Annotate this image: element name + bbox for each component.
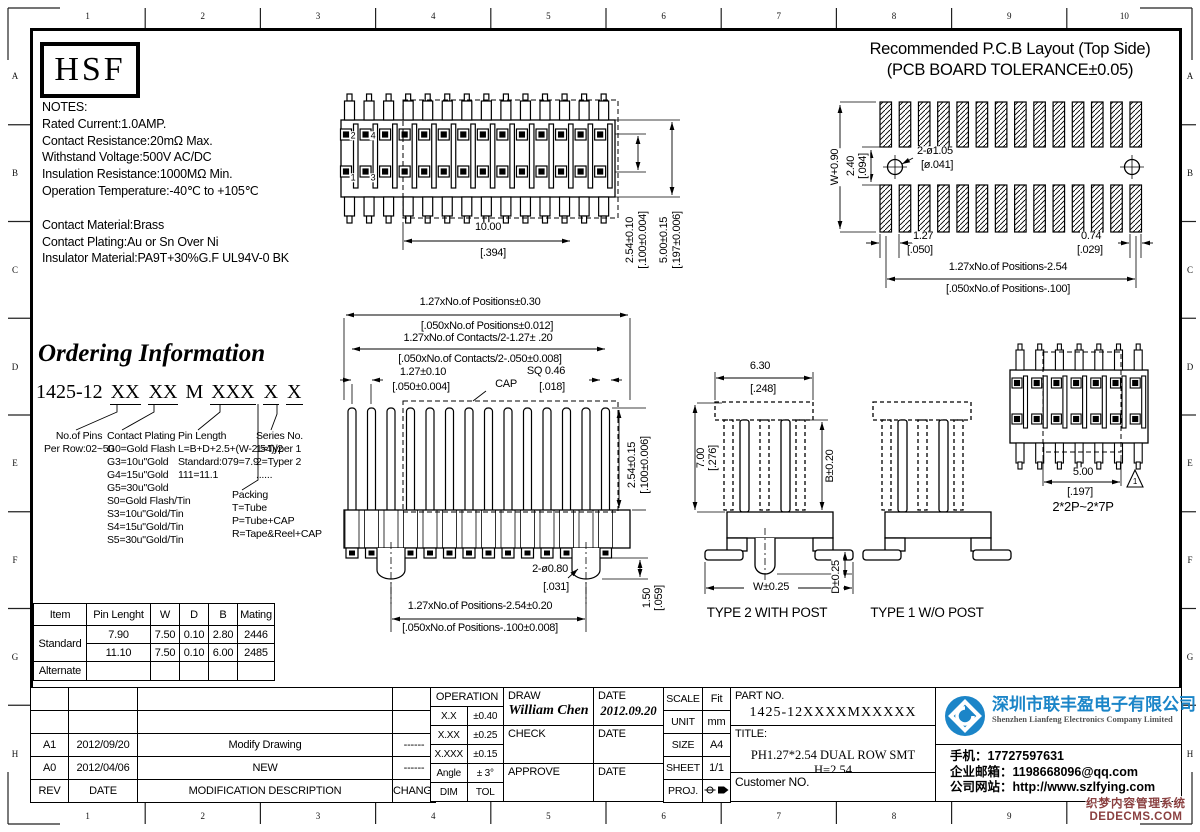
dim-label: TYPE 2 WITH POST [706,606,828,620]
tolerance-dim: X.XX [431,726,468,745]
dim-label: [.029] [1076,245,1104,257]
approve-label: APPROVE [508,766,560,778]
zone-letter: F [1187,555,1192,565]
hsf-logo-text: HSF [54,51,125,89]
zone-number: 1 [85,11,90,21]
spec-cell: 2485 [238,644,275,662]
zone-letter: H [12,749,19,759]
zone-letter: G [1187,652,1194,662]
dim-label: 4 [370,131,377,140]
tolerance-dim: X.X [431,707,468,726]
dim-label: 2.54±0.15 [627,441,639,489]
hsf-logo: HSF [40,42,140,98]
revision-cell: A0 [31,757,69,780]
revision-cell [31,711,69,734]
spec-cell: 7.90 [87,626,151,644]
dim-label: [.050xNo.of Positions-.100±0.008] [401,623,559,635]
note-line: Operation Temperature:-40℃ to +105℃ [42,183,289,200]
revision-table: A12012/09/20Modify Drawing------A02012/0… [30,687,436,803]
spec-cell: 7.50 [151,626,180,644]
zone-number: 9 [1007,11,1012,21]
zone-letter: B [12,168,18,178]
zone-letter: E [1187,458,1193,468]
title-cell: TITLE: PH1.27*2.54 DUAL ROW SMT H=2.54 [730,725,936,773]
ordering-col-pins: No.of PinsPer Row:02~50 [44,430,114,456]
ordering-col-item: Per Row:02~50 [44,443,114,456]
ordering-col-item: S3=10u"Gold/Tin [107,508,190,521]
ordering-col-header: Series No. [256,430,303,443]
draw-date-cell: DATE 2012.09.20 [593,687,664,726]
date-label: DATE [598,766,626,778]
check-cell: CHECK [503,725,594,764]
dim-label: B±0.20 [825,449,837,484]
revision-cell: A1 [31,734,69,757]
tolerance-value: ±0.15 [467,745,504,764]
company-logo-cell: 深圳市联丰盈电子有限公司 Shenzhen Lianfeng Electroni… [935,687,1182,745]
spec-table: ItemPin LenghtWDBMatingStandard7.907.500… [33,603,275,681]
spec-cell: 11.10 [87,644,151,662]
ordering-col-packing: PackingT=TubeP=Tube+CAPR=Tape&Reel+CAP [232,489,322,541]
zone-number: 7 [777,811,782,821]
dim-label: 2*2P~2*7P [1051,500,1114,514]
dim-label: 5.00 [1072,467,1094,479]
zone-number: 2 [201,811,206,821]
draw-date: 2012.09.20 [594,704,663,719]
small-view-details [1012,344,1146,469]
dim-label: [.248] [749,384,777,396]
zone-number: 7 [777,11,782,21]
meta-value: 1/1 [703,757,731,780]
meta-label: SIZE [664,734,703,757]
note-line: Contact Plating:Au or Sn Over Ni [42,234,289,251]
note-line: Contact Material:Brass [42,217,289,234]
part-segment: 1425-12 [36,381,103,405]
dim-label: 1.27xNo.of Positions-2.54 [948,262,1068,274]
revision-footer: MODIFICATION DESCRIPTION [138,780,393,803]
zone-letter: F [12,555,17,565]
meta-value: mm [703,711,731,734]
tolerance-table: OPERATIONX.X±0.40X.XX±0.25X.XXX±0.15Angl… [430,687,504,802]
dim-label: 1.27xNo.of Positions-2.54±0.20 [407,601,553,613]
part-no-value: 1425-12XXXXMXXXXX [731,705,935,721]
tolerance-value: ±0.40 [467,707,504,726]
watermark: 织梦内容管理系统 DEDECMS.COM [1076,795,1196,823]
drawing-sheet: HSF NOTES:Rated Current:1.0AMP.Contact R… [0,0,1200,832]
note-line: Insulation Resistance:1000MΩ Min. [42,166,289,183]
dim-label: 10.00 [474,222,502,234]
dim-label: 2-ø0.80 [531,564,569,576]
dim-label: [.018] [538,382,566,394]
revision-footer: REV [31,780,69,803]
ordering-col-item: T=Tube [232,502,322,515]
watermark-line2: DEDECMS.COM [1076,811,1196,823]
spec-header: Pin Lenght [87,604,151,626]
ordering-col-header: No.of Pins [44,430,114,443]
note-line: NOTES: [42,99,289,116]
date-label: DATE [598,690,626,702]
dim-label: W+0.90 [830,148,842,186]
ordering-col-item: 2=Typer 2 [256,456,303,469]
type2-side-view [705,402,853,585]
zone-number: 1 [85,811,90,821]
notes-block: NOTES:Rated Current:1.0AMP.Contact Resis… [42,99,289,267]
company-contact-line: 公司网站：http://www.szlfying.com [950,780,1181,796]
spec-cell: 0.10 [180,626,209,644]
third-angle-projection-icon [704,784,730,796]
front-view-body [344,510,630,548]
approve-cell: APPROVE [503,763,594,802]
drawer-signature: William Chen [504,703,593,719]
zone-number: 6 [661,11,666,21]
date-label: DATE [598,728,626,740]
zone-letter: C [12,265,18,275]
dim-label: [.050] [906,245,934,257]
dim-label: 2.40 [846,155,858,177]
zone-letter: H [1187,749,1194,759]
customer-label: Customer NO. [735,775,809,789]
ordering-col-item: 1=Typer 1 [256,443,303,456]
part-segment: M [185,381,203,405]
draw-cell: DRAW William Chen [503,687,594,726]
revision-footer: DATE [69,780,138,803]
spec-cell: 0.10 [180,644,209,662]
dim-label: 1.27±0.10 [399,367,447,379]
dim-label: W±0.25 [752,582,790,594]
revision-cell [69,688,138,711]
ordering-title: Ordering Information [38,340,265,368]
spec-header: W [151,604,180,626]
company-contact-line: 手机：17727597631 [950,749,1181,765]
spec-header: Mating [238,604,275,626]
company-name-en: Shenzhen Lianfeng Electronics Company Li… [992,714,1196,724]
zone-letter: D [1187,362,1194,372]
revision-cell: NEW [138,757,393,780]
zone-number: 3 [316,811,321,821]
zone-number: 9 [1007,811,1012,821]
spec-cell: 2.80 [209,626,238,644]
zone-number: 6 [661,811,666,821]
dim-label: [.094] [858,152,870,180]
tolerance-value: ± 3° [467,764,504,783]
dim-label: 1.27xNo.of Positions±0.30 [419,297,542,309]
revision-cell: Modify Drawing [138,734,393,757]
spec-cell: 2446 [238,626,275,644]
meta-value: A4 [703,734,731,757]
type1-side-view [863,402,1011,560]
check-date-cell: DATE [593,725,664,764]
dim-label: [.050xNo.of Positions±0.012] [420,321,554,333]
dim-label: 0.74 [1080,231,1102,243]
proj-symbol-cell [703,780,731,803]
spec-cell: 7.50 [151,644,180,662]
approve-date-cell: DATE [593,763,664,802]
company-contact-cell: 手机：17727597631企业邮箱：1198668096@qq.com公司网站… [935,744,1182,802]
zone-letter: B [1187,168,1193,178]
title-label: TITLE: [735,728,767,740]
company-contact-line: 企业邮箱：1198668096@qq.com [950,765,1181,781]
operation-header: OPERATION [431,688,504,707]
ordering-col-item: S4=15u"Gold/Tin [107,521,190,534]
ord-col-series: Series No.1=Typer 12=Typer 2...... [256,430,303,482]
meta-label: SCALE [664,688,703,711]
revision-cell [138,711,393,734]
revision-cell: 2012/04/06 [69,757,138,780]
tolerance-dim: DIM [431,783,468,802]
dim-label: [.394] [479,248,507,260]
spec-header: Item [34,604,87,626]
dim-label: 1.27xNo.of Contacts/2-1.27± .20 [403,333,554,345]
tolerance-value: TOL [467,783,504,802]
zone-number: 10 [1120,11,1129,21]
meta-label: SHEET [664,757,703,780]
dim-label: SQ 0.46 [526,366,566,378]
part-segment: XX [148,381,179,405]
dim-label: D±0.25 [831,559,843,595]
zone-number: 2 [201,11,206,21]
dim-label: TYPE 1 W/O POST [869,606,984,620]
dim-label: [.276] [708,444,720,472]
ordering-col-item: S0=Gold Flash/Tin [107,495,190,508]
zone-number: 3 [316,11,321,21]
part-segment: X [263,381,279,405]
zone-letter: A [1187,71,1194,81]
part-no-cell: PART NO. 1425-12XXXXMXXXXX [730,687,936,726]
company-name-cn: 深圳市联丰盈电子有限公司 [992,695,1196,714]
part-segment: XXX [210,381,255,405]
dim-label: 1 [1132,478,1138,486]
tolerance-dim: Angle [431,764,468,783]
spec-group: Standard [34,626,87,662]
customer-cell: Customer NO. [730,772,936,802]
meta-value: Fit [703,688,731,711]
meta-label: UNIT [664,711,703,734]
check-label: CHECK [508,728,546,740]
dim-label: 3 [370,173,377,182]
pcb-layout-title: Recommended P.C.B Layout (Top Side) [836,40,1184,59]
note-line: Insulator Material:PA9T+30%G.F UL94V-0 B… [42,250,289,267]
part-segment: XX [110,381,141,405]
dim-label: [.031] [542,582,570,594]
dim-label: 5.00±0.15 [659,216,671,264]
dim-label: [.050±0.004] [391,382,451,394]
dim-label: [.100±0.006] [640,435,652,495]
zone-letter: E [12,458,18,468]
zone-number: 4 [431,811,436,821]
revision-cell: 2012/09/20 [69,734,138,757]
zone-number: 4 [431,11,436,21]
zone-letter: G [12,652,19,662]
revision-cell [138,688,393,711]
zone-number: 8 [892,811,897,821]
dim-label: [.197] [1066,487,1094,499]
dim-label: 1.27 [912,231,934,243]
tolerance-value: ±0.25 [467,726,504,745]
dim-label: [.050xNo.of Contacts/2-.050±0.008] [397,354,562,366]
zone-number: 5 [546,11,551,21]
ordering-col-item: G5=30u"Gold [107,482,190,495]
note-line: Contact Resistance:20mΩ Max. [42,133,289,150]
revision-cell [69,711,138,734]
meta-table: SCALEFitUNITmmSIZEA4SHEET1/1PROJ. [663,687,731,803]
dim-label: [.100±0.004] [638,210,650,270]
front-view-pins [348,408,610,514]
spec-header: B [209,604,238,626]
spec-group: Alternate [34,662,87,681]
ordering-col-item: P=Tube+CAP [232,515,322,528]
zone-letter: D [12,362,19,372]
tolerance-dim: X.XXX [431,745,468,764]
note-line: Withstand Voltage:500V AC/DC [42,149,289,166]
dim-label: 6.30 [749,361,771,373]
dim-label: 1 [350,173,357,182]
zone-number: 5 [546,811,551,821]
part-number-breakdown: 1425-12XXXXMXXXXX [36,381,303,405]
spec-cell: 6.00 [209,644,238,662]
dim-label: CAP [494,379,518,391]
zone-letter: A [12,71,19,81]
part-segment: X [286,381,302,405]
type2-cap-ghost [715,402,813,420]
type1-cap-ghost [873,402,971,420]
dim-label: [.059] [654,584,666,612]
dim-label: [.050xNo.of Positions-.100] [945,284,1071,296]
note-line: Rated Current:1.0AMP. [42,116,289,133]
dim-label: [.197±0.006] [672,210,684,270]
ordering-col-item: R=Tape&Reel+CAP [232,528,322,541]
company-logo-icon [944,695,986,737]
part-no-label: PART NO. [735,690,784,702]
dim-label: 7.00 [696,447,708,469]
ordering-col-item: ...... [256,469,303,482]
dim-label: 2.54±0.10 [625,216,637,264]
dim-label: 2 [350,131,357,140]
proj-label: PROJ. [664,780,703,803]
dim-label: 1.50 [642,587,654,609]
pcb-layout-subtitle: (PCB BOARD TOLERANCE±0.05) [836,61,1184,80]
ordering-col-header: Packing [232,489,322,502]
spec-header: D [180,604,209,626]
draw-label: DRAW [508,690,540,702]
zone-letter: C [1187,265,1193,275]
top-view-details [341,94,613,223]
revision-cell [31,688,69,711]
dim-label: [ø.041] [920,160,954,172]
watermark-line1: 织梦内容管理系统 [1076,795,1196,811]
dim-label: 2-ø1.05 [916,146,954,158]
zone-number: 8 [892,11,897,21]
ordering-col-item: S5=30u"Gold/Tin [107,534,190,547]
